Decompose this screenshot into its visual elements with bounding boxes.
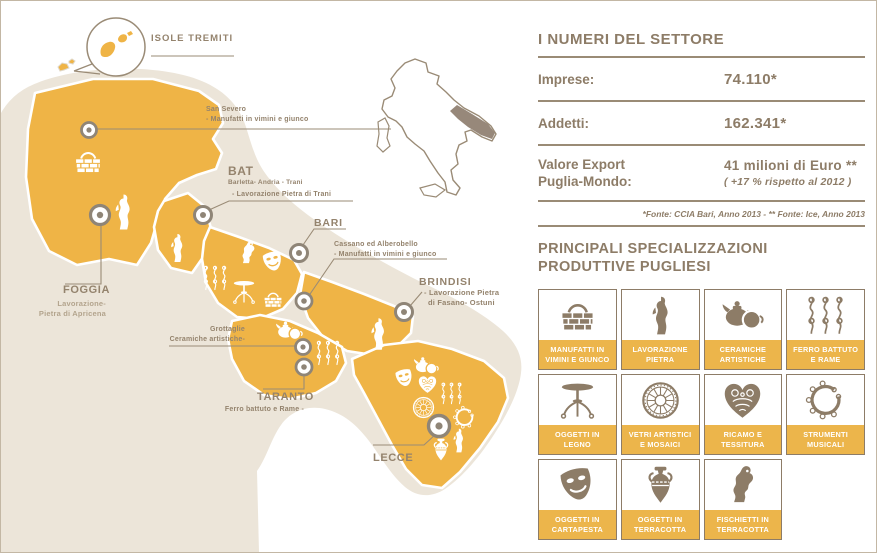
spec-label-line2: TERRACOTTA <box>717 525 769 535</box>
pin-lecce <box>429 416 450 437</box>
infographic-canvas: ISOLE TREMITI San Severo - Manufatti in … <box>0 0 877 553</box>
spec-label-line2: E RAME <box>811 355 841 365</box>
pin-grottaglie <box>296 340 311 355</box>
spec-label-line2: CARTAPESTA <box>552 525 603 535</box>
label-isole-tremiti: ISOLE TREMITI <box>151 33 233 44</box>
spec-item-label: OGGETTI INCARTAPESTA <box>539 510 616 539</box>
heart-icon <box>705 375 782 425</box>
spec-item-statue: LAVORAZIONEPIETRA <box>621 289 700 370</box>
spec-item-label: FERRO BATTUTOE RAME <box>787 340 864 369</box>
imprese-label: Imprese: <box>538 71 724 88</box>
spec-label-line2: TESSITURA <box>721 440 765 450</box>
spec-label-line2: E MOSAICI <box>640 440 680 450</box>
spec-item-label: OGGETTI INLEGNO <box>539 425 616 454</box>
spec-label-line1: CERAMICHE <box>720 345 766 355</box>
label-grottaglie: Grottaglie Ceramiche artistiche- <box>159 325 245 344</box>
iron-icon <box>787 290 864 340</box>
pin-cassano <box>296 293 312 309</box>
spec-title-line2: PRODUTTIVE PUGLIESI <box>538 259 865 277</box>
mask-icon <box>539 460 616 510</box>
amphora-icon <box>622 460 699 510</box>
puglia-highlight <box>450 105 495 139</box>
label-taranto-title: TARANTO <box>257 391 314 403</box>
spec-item-label: VETRI ARTISTICIE MOSAICI <box>622 425 699 454</box>
label-brindisi-desc: - Lavorazione Pietra di Fasano- Ostuni <box>424 288 499 308</box>
stat-row-addetti: Addetti: 162.341* <box>538 102 865 144</box>
spec-label-line1: VETRI ARTISTICI <box>629 430 692 440</box>
label-bat-subtitle: Barletta- Andria - Trani <box>228 179 303 186</box>
label-foggia-title: FOGGIA <box>63 284 110 296</box>
san-severo-desc: - Manufatti in vimini e giunco <box>206 115 308 125</box>
tremiti-magnifier <box>74 18 145 76</box>
spec-label-line1: MANUFATTI IN <box>550 345 604 355</box>
pin-taranto <box>296 359 312 375</box>
spec-item-teapot: CERAMICHEARTISTICHE <box>704 289 783 370</box>
spec-label-line2: VIMINI E GIUNCO <box>545 355 609 365</box>
label-lecce-title: LECCE <box>373 452 413 464</box>
spec-label-line1: FISCHIETTI IN <box>717 515 769 525</box>
tremiti-islands <box>58 59 75 71</box>
spec-item-label: CERAMICHEARTISTICHE <box>705 340 782 369</box>
basket-icon <box>539 290 616 340</box>
addetti-label: Addetti: <box>538 115 724 132</box>
italy-inset <box>377 59 496 197</box>
foggia-desc-line1: Lavorazione- <box>11 299 106 309</box>
cassano-title: Cassano ed Alberobello <box>334 240 436 250</box>
spec-item-whistle: FISCHIETTI INTERRACOTTA <box>704 459 783 540</box>
spec-item-amphora: OGGETTI INTERRACOTTA <box>621 459 700 540</box>
pin-brindisi <box>396 304 413 321</box>
spec-item-label: LAVORAZIONEPIETRA <box>622 340 699 369</box>
pin-bari <box>291 245 308 262</box>
pin-foggia <box>91 206 110 225</box>
spec-item-rosette: VETRI ARTISTICIE MOSAICI <box>621 374 700 455</box>
spec-item-iron: FERRO BATTUTOE RAME <box>786 289 865 370</box>
spec-item-tambourine: STRUMENTIMUSICALI <box>786 374 865 455</box>
spec-item-heart: RICAMO ETESSITURA <box>704 374 783 455</box>
table-icon <box>539 375 616 425</box>
spec-label-line1: FERRO BATTUTO <box>793 345 858 355</box>
spec-label-line1: RICAMO E <box>724 430 763 440</box>
label-san-severo: San Severo - Manufatti in vimini e giunc… <box>206 105 308 124</box>
label-bat-title: BAT <box>228 164 254 178</box>
tambourine-icon <box>787 375 864 425</box>
spec-item-label: STRUMENTIMUSICALI <box>787 425 864 454</box>
teapot-icon <box>705 290 782 340</box>
spec-title-line1: PRINCIPALI SPECIALIZZAZIONI <box>538 241 865 259</box>
export-note: ( +17 % rispetto al 2012 ) <box>724 176 857 188</box>
spec-item-label: RICAMO ETESSITURA <box>705 425 782 454</box>
spec-item-table: OGGETTI INLEGNO <box>538 374 617 455</box>
export-value: 41 milioni di Euro ** <box>724 158 857 173</box>
spec-item-label: FISCHIETTI INTERRACOTTA <box>705 510 782 539</box>
stat-row-export: Valore Export Puglia-Mondo: 41 milioni d… <box>538 146 865 200</box>
spec-label-line2: LEGNO <box>564 440 591 450</box>
spec-label-line1: OGGETTI IN <box>555 515 600 525</box>
spec-label-line2: TERRACOTTA <box>634 525 686 535</box>
source-note: *Fonte: CCIA Bari, Anno 2013 - ** Fonte:… <box>538 202 865 225</box>
spec-item-mask: OGGETTI INCARTAPESTA <box>538 459 617 540</box>
rosette-icon <box>622 375 699 425</box>
addetti-value: 162.341* <box>724 115 786 132</box>
spec-item-label: OGGETTI INTERRACOTTA <box>622 510 699 539</box>
spec-label-line2: PIETRA <box>646 355 674 365</box>
statue-icon <box>622 290 699 340</box>
spec-label-line2: ARTISTICHE <box>720 355 766 365</box>
label-bat-desc: - Lavorazione Pietra di Trani <box>232 190 331 200</box>
spec-label-line1: STRUMENTI <box>803 430 848 440</box>
export-value-block: 41 milioni di Euro ** ( +17 % rispetto a… <box>724 158 857 188</box>
label-taranto-desc: Ferro battuto e Rame - <box>211 405 304 415</box>
grottaglie-desc: Ceramiche artistiche- <box>159 335 245 345</box>
pin-bat <box>195 207 212 224</box>
export-label-line1: Valore Export <box>538 156 724 173</box>
export-label-line2: Puglia-Mondo: <box>538 173 724 190</box>
spec-item-basket: MANUFATTI INVIMINI E GIUNCO <box>538 289 617 370</box>
panel-title: I NUMERI DEL SETTORE <box>538 31 865 48</box>
spec-label-line1: LAVORAZIONE <box>632 345 687 355</box>
grottaglie-title: Grottaglie <box>159 325 245 335</box>
foggia-desc-line2: Pietra di Apricena <box>11 309 106 319</box>
divider <box>538 225 865 227</box>
specializations-title: PRINCIPALI SPECIALIZZAZIONI PRODUTTIVE P… <box>538 241 865 276</box>
label-cassano: Cassano ed Alberobello - Manufatti in vi… <box>334 240 436 259</box>
spec-label-line1: OGGETTI IN <box>555 430 600 440</box>
label-brindisi-title: BRINDISI <box>419 276 472 288</box>
san-severo-title: San Severo <box>206 105 308 115</box>
label-foggia-desc: Lavorazione- Pietra di Apricena <box>11 299 106 319</box>
export-label: Valore Export Puglia-Mondo: <box>538 156 724 190</box>
pin-san-severo <box>82 123 97 138</box>
label-bari-title: BARI <box>314 217 343 229</box>
whistle-icon <box>705 460 782 510</box>
cassano-desc: - Manufatti in vimini e giunco <box>334 250 436 260</box>
brindisi-desc-line2: di Fasano- Ostuni <box>428 298 499 308</box>
spec-label-line2: MUSICALI <box>807 440 844 450</box>
stat-row-imprese: Imprese: 74.110* <box>538 58 865 100</box>
imprese-value: 74.110* <box>724 71 777 88</box>
stats-panel: I NUMERI DEL SETTORE Imprese: 74.110* Ad… <box>538 1 865 540</box>
brindisi-desc-line1: - Lavorazione Pietra <box>424 288 499 298</box>
map-area: ISOLE TREMITI San Severo - Manufatti in … <box>1 1 538 552</box>
spec-item-label: MANUFATTI INVIMINI E GIUNCO <box>539 340 616 369</box>
spec-label-line1: OGGETTI IN <box>638 515 683 525</box>
specializations-grid: MANUFATTI INVIMINI E GIUNCOLAVORAZIONEPI… <box>538 289 865 540</box>
